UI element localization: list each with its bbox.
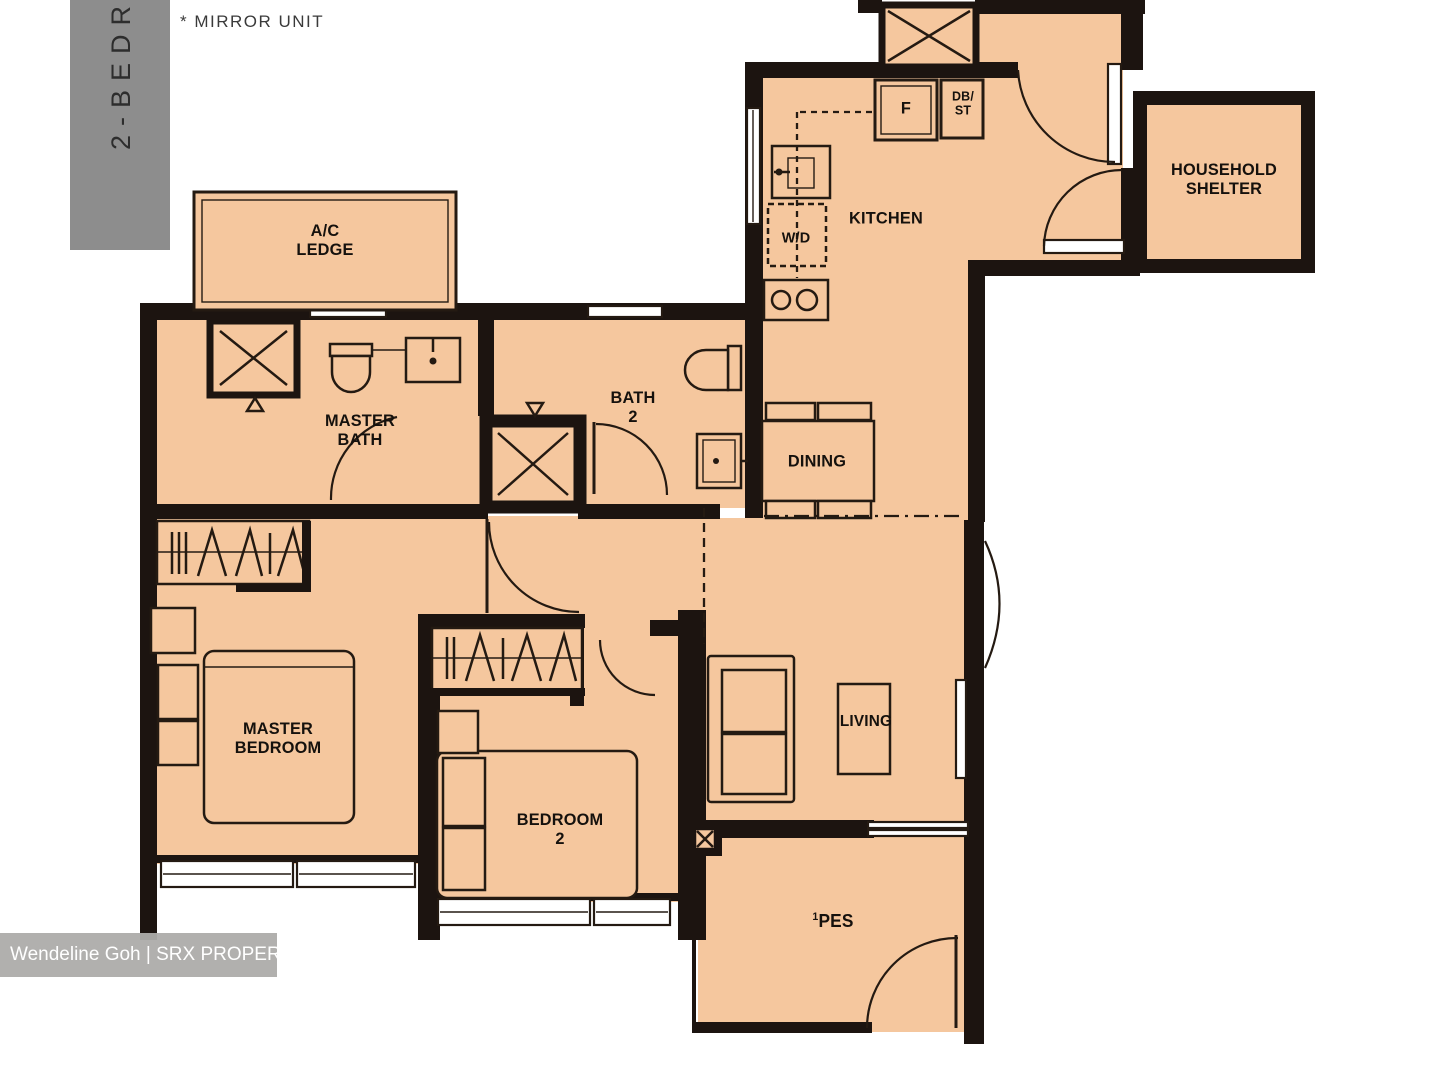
mirror-unit-note: * MIRROR UNIT [180, 12, 324, 32]
watermark: Wendeline Goh | SRX PROPERTY [0, 933, 277, 977]
washer-dryer-label: W/D [782, 231, 811, 248]
bedroom2-label: BEDROOM 2 [517, 810, 604, 848]
living-window-arc [985, 541, 1000, 668]
dining-label: DINING [788, 451, 846, 470]
fridge-label: F [901, 98, 911, 117]
master-shower-icon [210, 321, 297, 411]
db-st-label: DB/ ST [952, 89, 974, 116]
living-label: LIVING [840, 713, 892, 731]
master-bath-label: MASTER BATH [325, 411, 395, 449]
unit-type-label: 2-BEDROOM [106, 0, 137, 150]
ac-ledge-label: A/C LEDGE [296, 221, 353, 259]
kitchen-label: KITCHEN [849, 208, 923, 227]
pes-label: 1PES [812, 911, 853, 931]
bedroom2-wardrobe-icon [430, 628, 585, 696]
household-shelter-label: HOUSEHOLD SHELTER [1171, 160, 1277, 198]
master-toilet-icon [330, 344, 372, 392]
duct-shaft-icon [486, 421, 580, 507]
master-bedroom-label: MASTER BEDROOM [235, 719, 322, 757]
bath2-toilet-icon [685, 346, 741, 390]
unit-type-tab: 2-BEDROOM [70, 0, 170, 250]
bath2-label: BATH 2 [611, 388, 656, 426]
ac-shaft-icon [882, 5, 976, 67]
hob-icon [764, 280, 828, 320]
kitchen-sink-icon [772, 146, 830, 198]
floorplan-page: 2-BEDROOM * MIRROR UNIT A/C LEDGE MASTER… [0, 0, 1440, 1078]
entry-door-leaf [1108, 64, 1121, 164]
bath2-sink-icon [697, 434, 748, 488]
column-xbox-icon [688, 822, 722, 856]
master-wardrobe-icon [157, 521, 311, 592]
sofa-icon [708, 656, 794, 802]
shelter-door-leaf [1044, 240, 1124, 253]
